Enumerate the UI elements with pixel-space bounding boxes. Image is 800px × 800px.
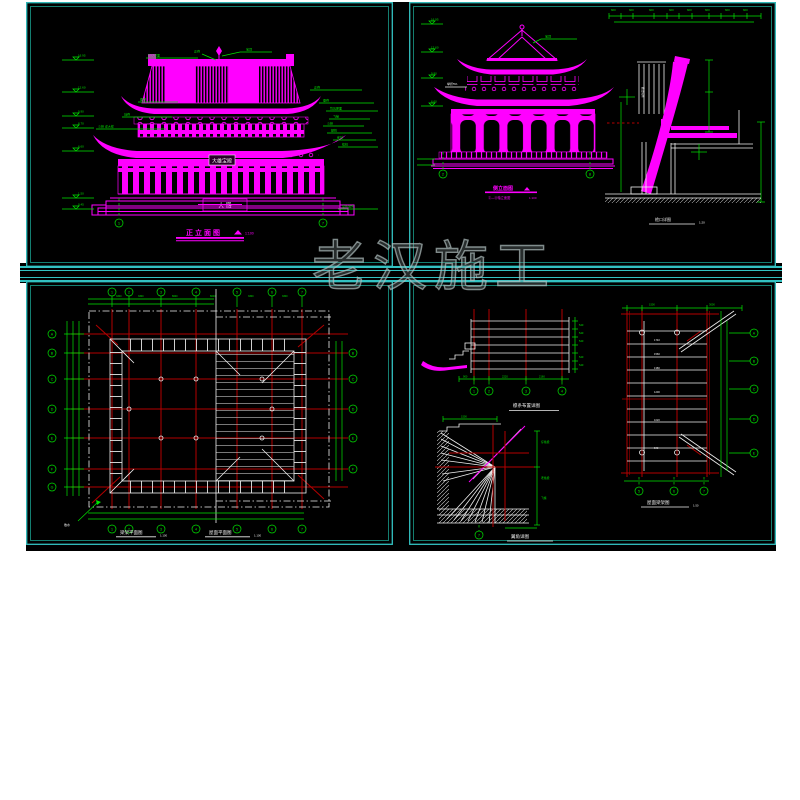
svg-text:3300: 3300 (248, 295, 254, 298)
corner-rafter-detail: 1500 仔角梁 老角梁 飞椽 7 翼角详图 (435, 415, 553, 542)
svg-text:3300: 3300 (282, 295, 288, 298)
svg-text:0.45: 0.45 (78, 203, 84, 207)
svg-text:4: 4 (195, 528, 197, 532)
svg-text:3: 3 (525, 390, 527, 394)
svg-text:840: 840 (654, 446, 659, 450)
svg-text:540: 540 (579, 339, 584, 343)
svg-text:16.95: 16.95 (431, 18, 439, 22)
bottom-black-strip (26, 545, 776, 551)
front-elevation-drawing: 大雄宝殿 大 殿 (92, 46, 354, 215)
svg-text:②—⑧轴立面图: ②—⑧轴立面图 (488, 195, 510, 200)
svg-text:1.50: 1.50 (78, 192, 84, 196)
svg-text:梁架平面图: 梁架平面图 (120, 529, 143, 536)
svg-text:16.95: 16.95 (78, 54, 86, 58)
svg-text:C: C (51, 378, 54, 382)
svg-text:6600: 6600 (172, 295, 178, 298)
svg-text:正立面图: 正立面图 (186, 228, 222, 237)
svg-text:B: B (753, 360, 756, 364)
svg-text:540: 540 (579, 331, 584, 335)
svg-text:5: 5 (638, 490, 640, 494)
svg-text:900: 900 (463, 375, 468, 379)
svg-text:正脊: 正脊 (194, 49, 200, 54)
svg-text:7: 7 (301, 291, 303, 295)
roof-finial (216, 46, 222, 56)
sheet-details: 540 540 540 540 540 900 2220 2160 1 2 3 … (409, 281, 776, 545)
svg-text:540: 540 (579, 363, 584, 367)
svg-text:7: 7 (301, 528, 303, 532)
detail-b-title: 翼角详图 (511, 533, 529, 540)
drawing-title: 正立面图 1:100 (176, 228, 254, 241)
svg-text:600: 600 (649, 8, 654, 12)
svg-text:6: 6 (271, 528, 273, 532)
svg-text:2: 2 (488, 390, 490, 394)
svg-text:3: 3 (160, 528, 162, 532)
colonnade-arches (451, 114, 595, 152)
svg-text:1:20: 1:20 (699, 221, 705, 225)
svg-text:B: B (51, 352, 54, 356)
svg-text:3000: 3000 (709, 303, 715, 307)
plan-titles: 梁架平面图 1:100 屋面平面图 1:100 (116, 529, 261, 538)
svg-text:侧立面图: 侧立面图 (493, 185, 513, 192)
svg-text:7: 7 (703, 490, 705, 494)
wall-columns-doors (118, 166, 324, 194)
svg-text:1740: 1740 (654, 338, 660, 342)
svg-text:飞椽: 飞椽 (333, 114, 339, 119)
svg-text:600: 600 (705, 8, 710, 12)
axis-bubbles-right: B C D E F (349, 349, 357, 473)
svg-text:12.60: 12.60 (78, 86, 86, 90)
svg-text:D: D (51, 408, 54, 412)
roof-framing-partial-plan: 1740 1560 1380 1200 1020 840 1500 3000 A… (621, 303, 758, 508)
watermark-text: 老汉施工 (312, 222, 556, 301)
svg-text:600: 600 (743, 8, 748, 12)
detail-c-title: 屋面梁架图 (647, 499, 670, 506)
svg-text:筒瓦屋面: 筒瓦屋面 (330, 106, 342, 111)
axis-bubbles-left: A B C D E F G (48, 330, 56, 491)
svg-text:2: 2 (442, 172, 445, 177)
level-markers-left: 16.95 12.60 9.90 8.70 6.60 1.50 0.45 (62, 54, 94, 210)
beam-ring (110, 339, 306, 493)
svg-text:7: 7 (478, 534, 480, 538)
detail-title: 檐口详图 (655, 216, 671, 222)
svg-text:室外地坪: 室外地坪 (342, 204, 354, 209)
svg-text:8.70: 8.70 (78, 122, 84, 126)
svg-text:600: 600 (725, 8, 730, 12)
svg-text:F: F (352, 468, 355, 472)
svg-text:1: 1 (111, 528, 113, 532)
svg-text:2: 2 (128, 291, 130, 295)
purlin-section-detail: 540 540 540 540 540 900 2220 2160 1 2 3 … (421, 309, 584, 411)
plaque-text: 大雄宝殿 (212, 158, 232, 165)
sheet-roof-plan: 3300 3300 6600 6600 3300 3300 1 2 3 4 5 … (26, 281, 393, 545)
svg-text:G: G (51, 486, 54, 490)
svg-text:1:100: 1:100 (254, 534, 261, 538)
svg-text:6: 6 (271, 291, 273, 295)
axis-bubbles-right: A B C D E (729, 329, 758, 457)
svg-text:1: 1 (473, 390, 475, 394)
svg-text:1:100: 1:100 (245, 232, 254, 236)
dougong-band (465, 86, 581, 91)
svg-text:1: 1 (111, 291, 113, 295)
svg-text:6: 6 (673, 490, 675, 494)
svg-text:F: F (51, 468, 54, 472)
svg-text:散水: 散水 (64, 522, 70, 527)
svg-text:A: A (51, 333, 54, 337)
svg-text:正脊: 正脊 (314, 85, 320, 90)
svg-text:4: 4 (195, 291, 197, 295)
svg-text:雀替: 雀替 (337, 135, 343, 140)
svg-text:宝顶: 宝顶 (545, 34, 551, 39)
svg-text:3300: 3300 (138, 295, 144, 298)
svg-text:6.60: 6.60 (78, 145, 84, 149)
eave-section-detail: 600 600 600 600 600 600 600 600 做法说明 (605, 8, 765, 225)
svg-text:8: 8 (589, 172, 592, 177)
svg-text:3300: 3300 (116, 295, 122, 298)
svg-text:斗栱: 斗栱 (327, 121, 333, 126)
svg-text:仔角梁: 仔角梁 (541, 440, 550, 444)
drawing-title: 侧立面图 ②—⑧轴立面图 1:100 (485, 185, 537, 200)
svg-text:5: 5 (236, 528, 238, 532)
corner-leader: 散水 (64, 500, 101, 527)
axis-bubbles-bottom: 5 6 7 (635, 477, 708, 495)
svg-text:6600: 6600 (210, 295, 216, 298)
svg-text:A: A (753, 332, 756, 336)
svg-text:1560: 1560 (654, 352, 660, 356)
svg-text:9.90: 9.90 (431, 72, 437, 76)
svg-text:C: C (753, 388, 756, 392)
svg-text:1:100: 1:100 (160, 534, 167, 538)
svg-text:540: 540 (579, 323, 584, 327)
svg-text:4: 4 (561, 390, 563, 394)
svg-text:600: 600 (629, 8, 634, 12)
detail-a-title: 檩条布置详图 (513, 402, 540, 409)
svg-text:D: D (753, 418, 756, 422)
side-elevation-drawing (431, 25, 615, 169)
svg-text:垂脊: 垂脊 (323, 98, 329, 103)
svg-text:额枋: 额枋 (331, 128, 337, 133)
purlin-half-plan (216, 351, 294, 481)
svg-text:1:50: 1:50 (693, 504, 699, 508)
svg-text:垂脊: 垂脊 (140, 97, 146, 102)
svg-text:E: E (51, 437, 54, 441)
svg-text:600: 600 (611, 8, 616, 12)
svg-text:做法说明: 做法说明 (641, 87, 645, 98)
eave-profile (421, 361, 467, 371)
svg-text:斗栱 详大样: 斗栱 详大样 (98, 124, 114, 129)
svg-text:筒瓦屋面: 筒瓦屋面 (148, 53, 160, 58)
svg-text:3: 3 (160, 291, 162, 295)
svg-text:1:100: 1:100 (529, 196, 537, 200)
svg-text:540: 540 (579, 355, 584, 359)
upper-eave (457, 59, 587, 75)
svg-text:D: D (352, 408, 355, 412)
railing (439, 152, 607, 158)
svg-text:2220: 2220 (502, 375, 508, 379)
svg-text:1500: 1500 (649, 303, 655, 307)
svg-text:C: C (352, 378, 355, 382)
svg-text:5: 5 (236, 291, 238, 295)
svg-text:屋面平面图: 屋面平面图 (209, 530, 232, 536)
svg-text:1: 1 (118, 221, 121, 226)
dougong-band-upper (134, 117, 308, 124)
purlins (627, 331, 707, 461)
svg-text:6.60: 6.60 (431, 100, 437, 104)
svg-text:2160: 2160 (539, 375, 545, 379)
svg-text:B: B (352, 352, 355, 356)
svg-text:600: 600 (669, 8, 674, 12)
svg-text:9.90: 9.90 (78, 110, 84, 114)
svg-text:老角梁: 老角梁 (541, 476, 550, 480)
svg-text:1380: 1380 (654, 366, 660, 370)
svg-text:12.60: 12.60 (431, 46, 439, 50)
svg-text:E: E (753, 452, 756, 456)
svg-text:飞椽: 飞椽 (541, 496, 547, 500)
svg-text:檐柱: 檐柱 (342, 142, 348, 147)
svg-text:1020: 1020 (654, 418, 660, 422)
svg-text:1500: 1500 (461, 415, 467, 419)
svg-text:举折5%: 举折5% (447, 81, 458, 86)
clerestory-windows (467, 76, 579, 85)
svg-text:E: E (352, 437, 355, 441)
svg-text:宝顶: 宝顶 (246, 47, 252, 52)
svg-text:戗脊: 戗脊 (124, 112, 130, 117)
clerestory-windows (138, 124, 304, 137)
svg-text:1200: 1200 (654, 390, 660, 394)
svg-text:600: 600 (687, 8, 692, 12)
